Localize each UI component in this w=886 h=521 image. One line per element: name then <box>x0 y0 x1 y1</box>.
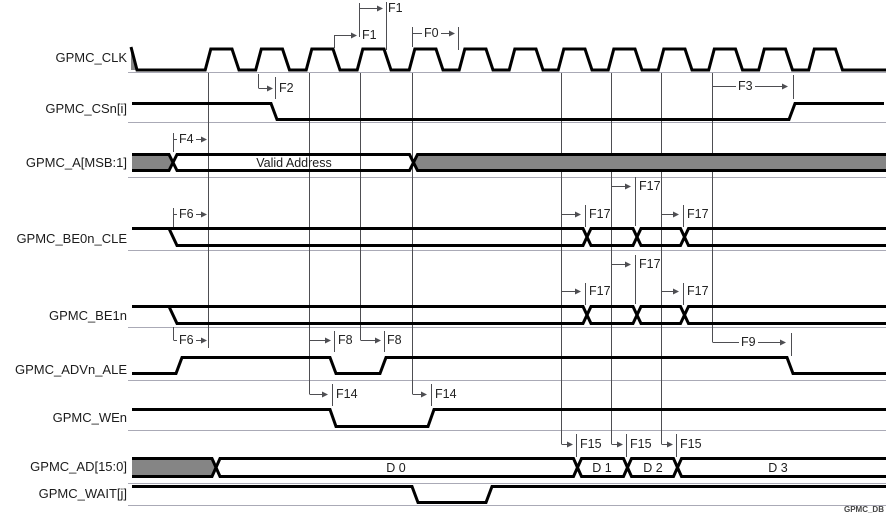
annotation-f6-be1n: F6 <box>177 333 196 347</box>
signal-label-gpmc-be0n: GPMC_BE0n_CLE <box>0 230 127 248</box>
be0n-bus-top-rail <box>132 229 886 246</box>
signal-label-gpmc-clk: GPMC_CLK <box>0 49 127 67</box>
annotation-f17-be1n-right: F17 <box>687 284 709 298</box>
annotation-f1-high: F1 <box>388 1 403 15</box>
be0n-bus-bottom-rail <box>169 229 886 246</box>
signal-label-gpmc-wait: GPMC_WAIT[j] <box>0 485 127 503</box>
annotation-f14-rise: F14 <box>435 387 457 401</box>
clock-edge-gridlines <box>209 73 713 444</box>
annotation-f17-be0n-right: F17 <box>687 207 709 221</box>
signal-label-gpmc-advn: GPMC_ADVn_ALE <box>0 361 127 379</box>
annotation-f8-rise: F8 <box>387 333 402 347</box>
annotation-f1-low: F1 <box>362 28 377 42</box>
annotation-f2: F2 <box>279 81 294 95</box>
advn-waveform <box>132 358 886 374</box>
annotation-f3: F3 <box>736 79 755 93</box>
bus-value-d3: D 3 <box>738 460 818 476</box>
measurement-arrowheads <box>201 6 788 448</box>
annotation-f17-be1n-left: F17 <box>589 284 611 298</box>
signal-label-gpmc-ad: GPMC_AD[15:0] <box>0 458 127 476</box>
annotation-f0: F0 <box>422 26 441 40</box>
wait-waveform <box>132 487 886 503</box>
signal-label-gpmc-be1n: GPMC_BE1n <box>0 307 127 325</box>
be1n-bus-bottom-rail <box>169 307 886 324</box>
signal-label-gpmc-wen: GPMC_WEn <box>0 409 127 427</box>
annotation-f17-be0n-mid: F17 <box>639 179 661 193</box>
wen-waveform <box>132 410 886 427</box>
be1n-bus-top-rail <box>132 307 886 324</box>
annotation-f17-be1n-mid: F17 <box>639 257 661 271</box>
annotation-f4: F4 <box>177 132 196 146</box>
annotation-f9: F9 <box>739 335 758 349</box>
signal-label-gpmc-csn: GPMC_CSn[i] <box>0 100 127 118</box>
signal-waveforms <box>131 47 886 503</box>
bus-invalid-fills <box>131 47 886 477</box>
annotation-f15-d1: F15 <box>580 437 602 451</box>
bus-value-d2: D 2 <box>613 460 693 476</box>
figure-watermark: GPMC_DB <box>790 505 884 514</box>
row-separators <box>128 73 886 506</box>
bus-value-valid-address: Valid Address <box>214 155 374 171</box>
signal-label-gpmc-a: GPMC_A[MSB:1] <box>0 154 127 172</box>
annotation-f14-fall: F14 <box>336 387 358 401</box>
csn-waveform <box>132 104 884 120</box>
bus-value-d0: D 0 <box>356 460 436 476</box>
timing-diagram: GPMC_CLK GPMC_CSn[i] GPMC_A[MSB:1] GPMC_… <box>0 0 886 521</box>
annotation-f8-fall: F8 <box>338 333 353 347</box>
annotation-f17-be0n-left: F17 <box>589 207 611 221</box>
annotation-f6-be0n: F6 <box>177 207 196 221</box>
annotation-f15-d3: F15 <box>680 437 702 451</box>
clk-waveform <box>131 47 886 70</box>
annotation-f15-d2: F15 <box>630 437 652 451</box>
